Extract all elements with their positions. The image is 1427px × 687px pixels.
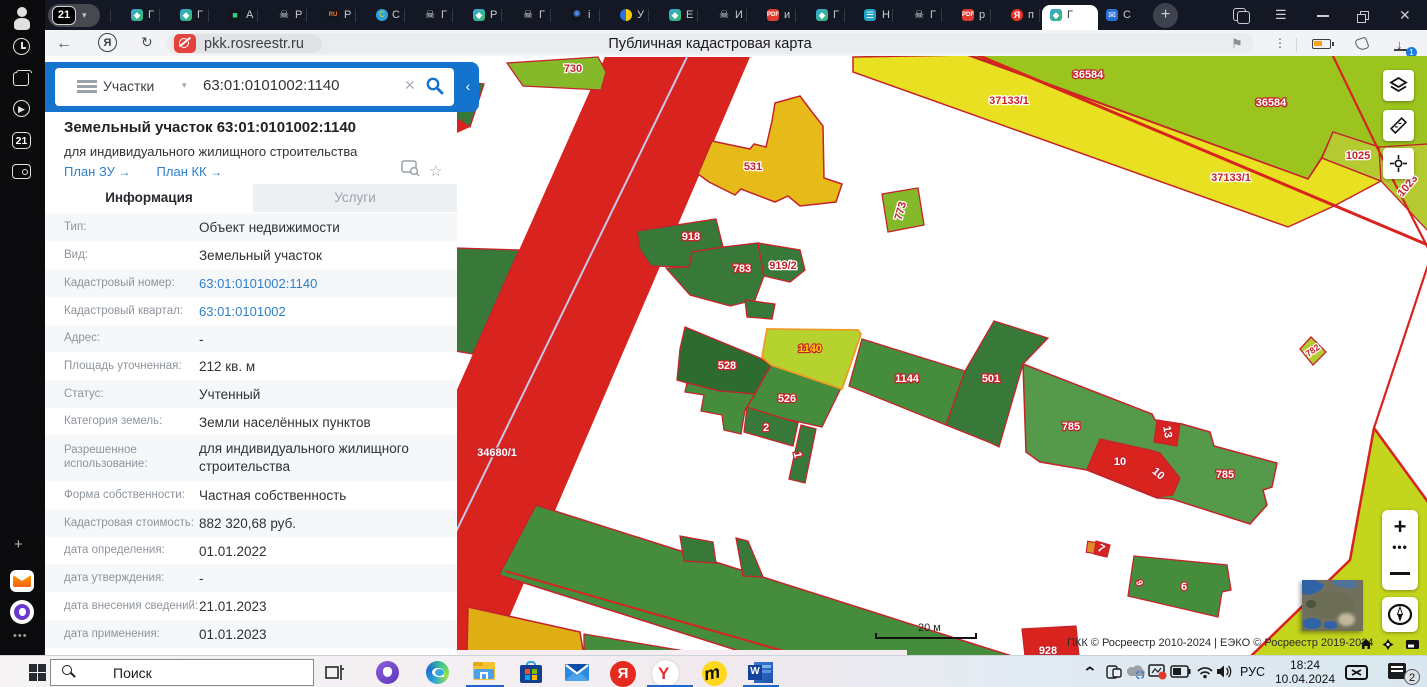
svg-text:928: 928 [1039, 645, 1057, 655]
svg-text:918: 918 [682, 231, 700, 243]
svg-text:531: 531 [744, 161, 762, 173]
svg-text:13: 13 [1160, 425, 1174, 439]
svg-text:37133/1: 37133/1 [1211, 172, 1251, 184]
svg-text:34680/1: 34680/1 [477, 447, 517, 459]
svg-text:2: 2 [763, 422, 769, 434]
svg-text:730: 730 [564, 63, 582, 75]
svg-text:20 м: 20 м [918, 622, 941, 634]
svg-text:785: 785 [1216, 469, 1234, 481]
svg-text:526: 526 [778, 393, 796, 405]
svg-text:501: 501 [982, 373, 1000, 385]
svg-text:1144: 1144 [895, 373, 920, 385]
svg-text:919/2: 919/2 [769, 260, 797, 272]
svg-text:1140: 1140 [798, 343, 822, 355]
svg-text:36584: 36584 [1256, 97, 1287, 109]
svg-text:36584: 36584 [1073, 69, 1104, 81]
svg-text:785: 785 [1062, 421, 1080, 433]
svg-text:528: 528 [718, 360, 736, 372]
svg-text:37133/1: 37133/1 [989, 95, 1029, 107]
svg-text:10: 10 [1114, 456, 1126, 468]
svg-text:6: 6 [1181, 581, 1187, 593]
svg-text:783: 783 [733, 263, 751, 275]
svg-text:1025: 1025 [1346, 150, 1370, 162]
svg-text:2: 2 [1409, 672, 1415, 684]
